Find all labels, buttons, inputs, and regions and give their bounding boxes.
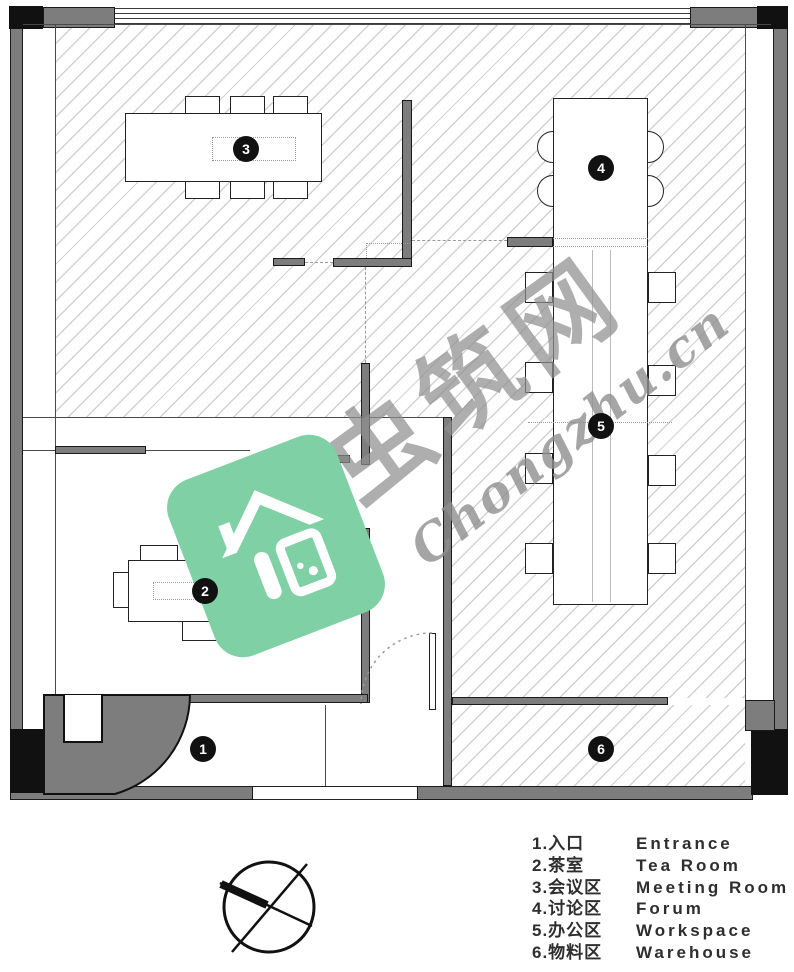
legend-row-entrance: 1.入口Entrance [532,833,789,855]
legend-label-en: Warehouse [636,943,754,962]
floor-plan: 1 2 3 4 5 6 虫筑网 Chongzhu.cn 1.入口Entrance… [0,0,794,972]
legend-row-forum: 4.讨论区Forum [532,898,789,920]
badge-tea-room: 2 [192,578,218,604]
legend-label-en: Workspace [636,921,753,940]
legend-label-zh: 4.讨论区 [532,898,636,920]
house-icon [192,462,360,630]
legend-row-meeting-room: 3.会议区Meeting Room [532,877,789,899]
badge-workspace: 5 [588,413,614,439]
legend-label-zh: 5.办公区 [532,920,636,942]
legend-label-en: Entrance [636,834,733,853]
badge-forum: 4 [588,155,614,181]
legend-label-en: Forum [636,899,704,918]
legend-label-zh: 3.会议区 [532,877,636,899]
badge-warehouse: 6 [588,736,614,762]
legend-label-zh: 6.物料区 [532,942,636,964]
legend-label-en: Tea Room [636,856,741,875]
legend-row-tea-room: 2.茶室Tea Room [532,855,789,877]
legend: 1.入口Entrance 2.茶室Tea Room 3.会议区Meeting R… [532,833,789,964]
legend-label-zh: 2.茶室 [532,855,636,877]
legend-row-workspace: 5.办公区Workspace [532,920,789,942]
legend-label-en: Meeting Room [636,878,789,897]
badge-meeting-room: 3 [233,136,259,162]
badge-entrance: 1 [190,736,216,762]
legend-row-warehouse: 6.物料区Warehouse [532,942,789,964]
legend-label-zh: 1.入口 [532,833,636,855]
